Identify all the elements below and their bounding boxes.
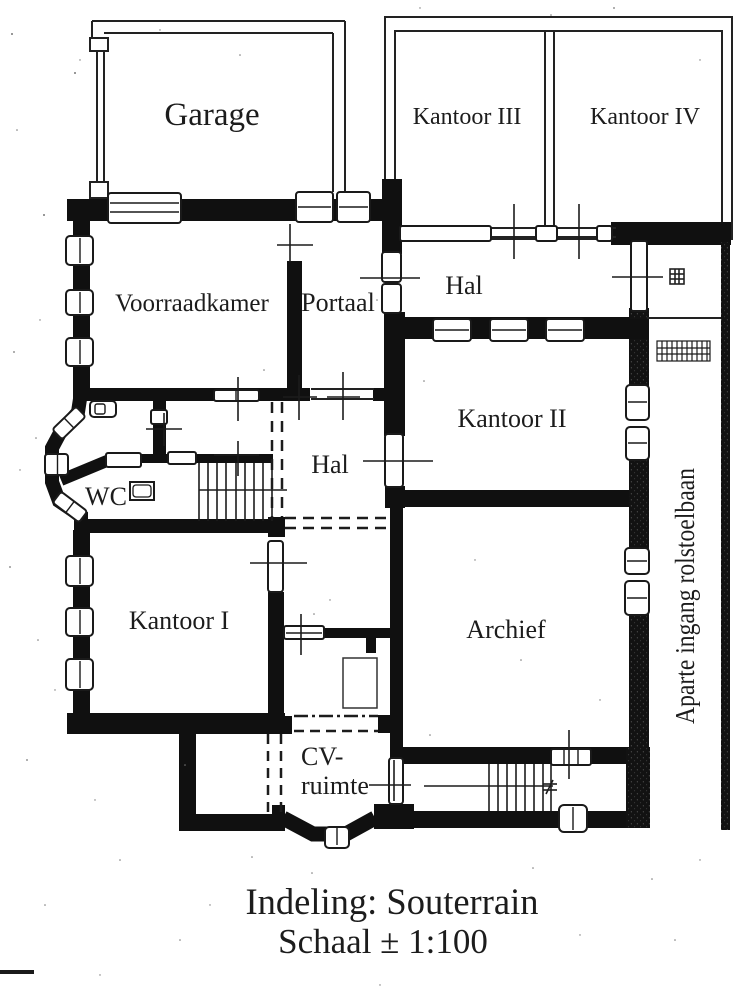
svg-text:Garage: Garage xyxy=(164,97,259,133)
svg-text:Hal: Hal xyxy=(311,450,349,479)
svg-text:WC: WC xyxy=(85,482,127,511)
svg-text:CV-: CV- xyxy=(301,742,343,771)
svg-text:ruimte: ruimte xyxy=(301,771,369,800)
svg-text:Kantoor I: Kantoor I xyxy=(129,606,229,635)
svg-text:Kantoor III: Kantoor III xyxy=(413,104,522,130)
svg-text:Schaal ± 1:100: Schaal ± 1:100 xyxy=(278,922,488,961)
svg-text:Voorraadkamer: Voorraadkamer xyxy=(115,290,269,317)
svg-text:Indeling: Souterrain: Indeling: Souterrain xyxy=(246,881,539,922)
svg-text:Kantoor IV: Kantoor IV xyxy=(590,104,701,130)
svg-text:Aparte ingang rolstoelbaan: Aparte ingang rolstoelbaan xyxy=(670,468,700,724)
svg-text:Archief: Archief xyxy=(466,615,546,644)
svg-text:Kantoor II: Kantoor II xyxy=(457,404,566,433)
svg-text:Portaal: Portaal xyxy=(301,288,375,317)
svg-text:Hal: Hal xyxy=(445,271,483,300)
